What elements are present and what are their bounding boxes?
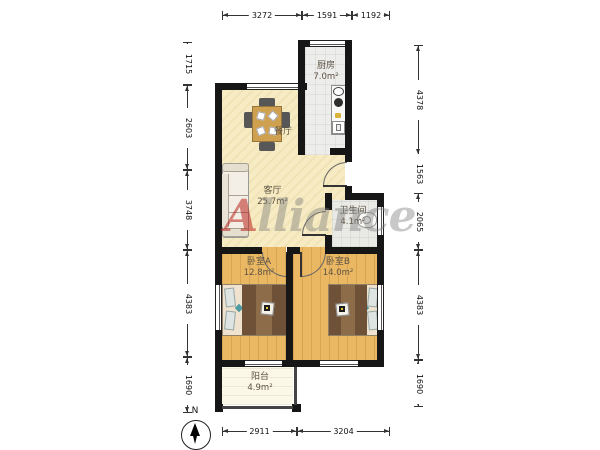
compass-needle xyxy=(190,423,200,436)
bed-a-pillow xyxy=(224,311,236,331)
stove-burner-icon xyxy=(334,98,343,107)
sofa-armrest xyxy=(222,228,249,237)
wall-divider-a xyxy=(215,247,262,254)
room-area: 25.7m² xyxy=(250,197,295,208)
window-bathroom xyxy=(377,207,384,235)
bed-a-pillow xyxy=(224,288,236,308)
dim-left-2: 2603 xyxy=(182,85,193,170)
room-area: 12.8m² xyxy=(238,268,280,279)
dim-right-5: 1690 xyxy=(413,360,424,407)
floor-plan: 厨房 7.0m² 餐厅 客厅 25.7m² 卫生间 4.1m² 卧室A 12.8… xyxy=(0,0,600,450)
sofa-cushion-line xyxy=(229,195,248,196)
wall-right-upper xyxy=(345,40,352,162)
dim-right-3: 2065 xyxy=(413,193,424,250)
bedroom-b-door-leaf xyxy=(300,252,302,277)
room-name: 卧室B xyxy=(317,257,359,268)
dim-bottom-1: 2911 xyxy=(222,426,297,437)
bed-b-dot xyxy=(341,308,343,310)
dim-right-1: 4378 xyxy=(413,45,424,155)
compass-north-label: N xyxy=(189,406,201,419)
dim-top-3: 1192 xyxy=(352,10,390,21)
room-name: 餐厅 xyxy=(262,127,304,138)
balcony-rail-right xyxy=(294,367,297,405)
window-bedroom-b xyxy=(377,285,384,330)
faucet-icon xyxy=(335,113,341,118)
room-area: 7.0m² xyxy=(305,72,347,83)
stove-burner-icon xyxy=(333,87,344,96)
window-bedroom-a xyxy=(215,285,222,330)
room-label-bathroom: 卫生间 4.1m² xyxy=(332,206,374,228)
sofa-armrest xyxy=(222,163,249,172)
room-label-dining: 餐厅 xyxy=(262,127,304,138)
dim-top-1: 3272 xyxy=(222,10,302,21)
dim-top-2: 1591 xyxy=(302,10,352,21)
room-name: 厨房 xyxy=(305,61,347,72)
dim-left-4: 4383 xyxy=(182,250,193,357)
balcony-rail-bottom xyxy=(222,406,293,409)
dim-left-1: 1715 xyxy=(182,42,193,85)
dim-right-2: 1563 xyxy=(413,155,424,193)
room-name: 卧室A xyxy=(238,257,280,268)
dim-left-3: 3748 xyxy=(182,170,193,250)
entrance-door-leaf xyxy=(323,185,347,187)
room-area: 4.9m² xyxy=(239,383,281,394)
room-label-bedroom-a: 卧室A 12.8m² xyxy=(238,257,280,279)
bathroom-door-leaf xyxy=(302,234,326,236)
dim-bottom-2: 3204 xyxy=(297,426,390,437)
wall-between-bedrooms xyxy=(286,254,293,367)
compass-needle-tail xyxy=(193,436,197,444)
sink-basin xyxy=(336,124,341,131)
sofa-back xyxy=(222,174,229,227)
window-bedroom-b-south xyxy=(320,360,358,367)
wall-divider-c xyxy=(327,247,384,254)
wall-bottom xyxy=(215,360,384,367)
wall-divider-b xyxy=(287,247,300,254)
balcony-slider xyxy=(245,360,282,367)
room-name: 客厅 xyxy=(250,186,295,197)
window-dining xyxy=(247,83,298,90)
room-label-balcony: 阳台 4.9m² xyxy=(239,372,281,394)
room-label-kitchen: 厨房 7.0m² xyxy=(305,61,347,83)
wall-bathroom-left-upper xyxy=(325,193,332,210)
window-kitchen xyxy=(310,40,345,47)
dining-chair-right xyxy=(281,112,290,128)
dim-right-4: 4383 xyxy=(413,250,424,360)
balcony-post xyxy=(292,404,301,412)
room-area: 4.1m² xyxy=(332,217,374,228)
room-label-living: 客厅 25.7m² xyxy=(250,186,295,208)
room-label-bedroom-b: 卧室B 14.0m² xyxy=(317,257,359,279)
room-name: 阳台 xyxy=(239,372,281,383)
room-name: 卫生间 xyxy=(332,206,374,217)
dim-left-5: 1690 xyxy=(182,357,193,413)
dining-chair-bottom xyxy=(259,142,275,151)
sofa-cushion-line xyxy=(229,212,248,213)
room-area: 14.0m² xyxy=(317,268,359,279)
bed-a-dot xyxy=(266,307,268,309)
